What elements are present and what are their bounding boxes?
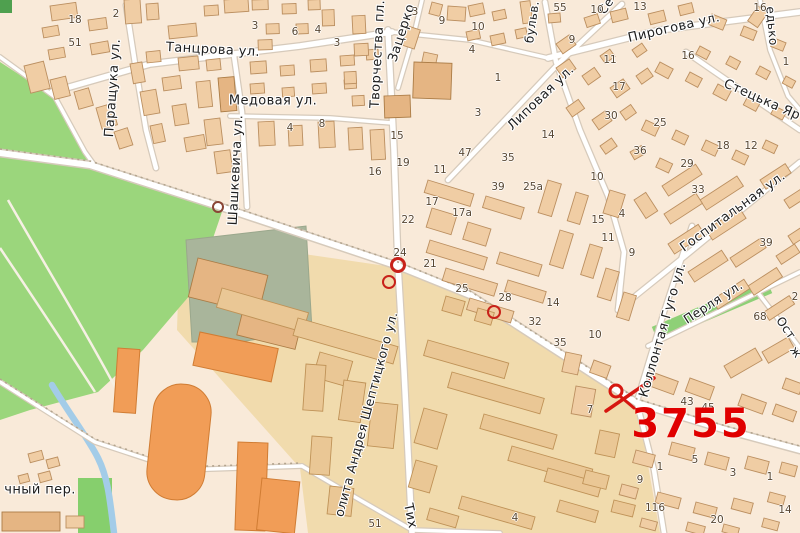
map-canvas[interactable]: Танцрова ул.Медовая ул.Паращука ул.Шашке… (0, 0, 800, 533)
park-corner-patch (0, 0, 12, 13)
map-id-label: 3755 (631, 404, 750, 444)
map-graphics (0, 0, 800, 533)
